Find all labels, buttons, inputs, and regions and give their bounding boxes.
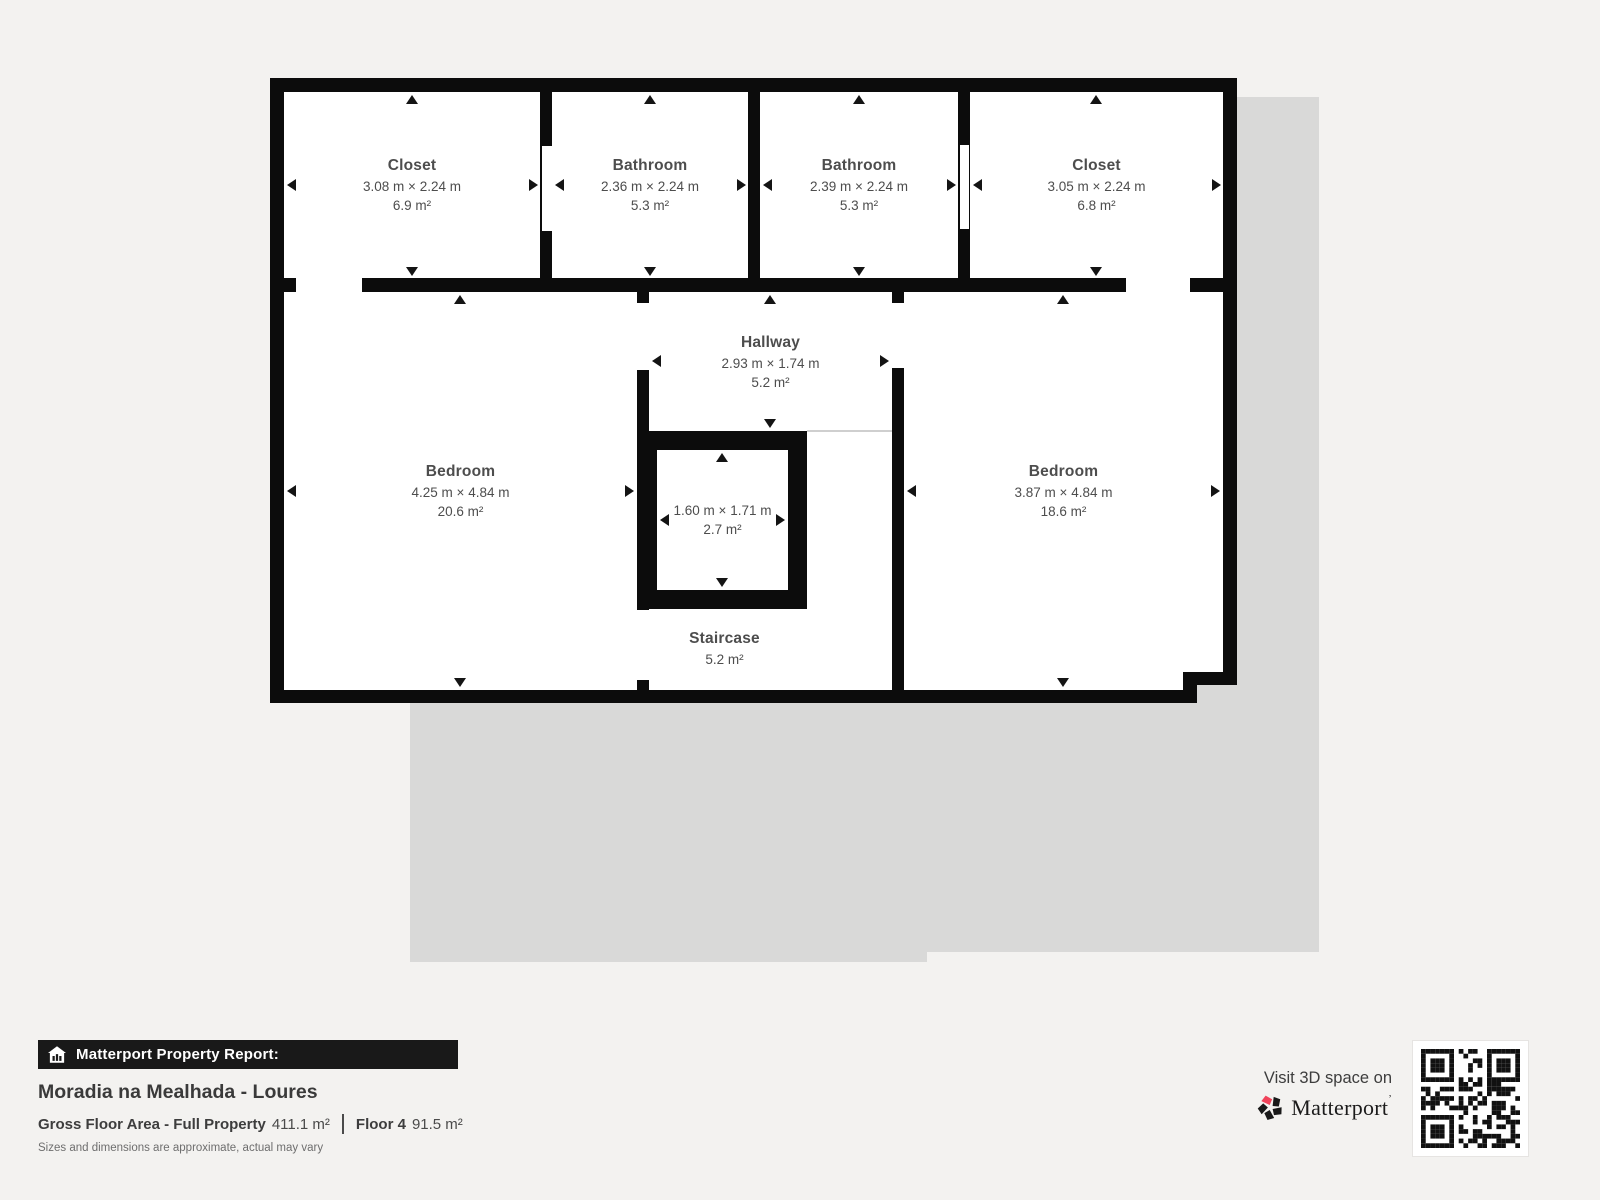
room-name: Hallway	[722, 332, 820, 354]
room-area: 5.2 m²	[689, 650, 760, 669]
room-name: Closet	[363, 155, 461, 177]
dim-arrow-down-icon	[716, 578, 728, 587]
room-area: 6.9 m²	[363, 196, 461, 215]
dim-arrow-up-icon	[716, 453, 728, 462]
room-dimensions: 3.87 m × 4.84 m	[1015, 483, 1113, 502]
dim-arrow-left-icon	[763, 179, 772, 191]
room-dimensions: 2.39 m × 2.24 m	[810, 177, 908, 196]
room-staircase: Staircase 5.2 m²	[649, 609, 800, 687]
report-header-bar: Matterport Property Report:	[38, 1040, 458, 1069]
dim-arrow-down-icon	[406, 267, 418, 276]
dim-arrow-left-icon	[555, 179, 564, 191]
room-bathroom-1: Bathroom 2.36 m × 2.24 m 5.3 m²	[552, 92, 748, 278]
room-closet-right: Closet 3.05 m × 2.24 m 6.8 m²	[970, 92, 1223, 278]
room-name: Bathroom	[601, 155, 699, 177]
dim-arrow-up-icon	[454, 295, 466, 304]
room-area: 18.6 m²	[1015, 502, 1113, 521]
gross-floor-area-label: Gross Floor Area - Full Property	[38, 1116, 266, 1133]
room-name: Bathroom	[810, 155, 908, 177]
room-closet-left: Closet 3.08 m × 2.24 m 6.9 m²	[284, 92, 540, 278]
door-opening	[542, 146, 552, 231]
building-outline-shadow	[1237, 97, 1319, 703]
room-name: Bedroom	[1015, 461, 1113, 483]
dim-arrow-left-icon	[973, 179, 982, 191]
door-opening	[1126, 277, 1190, 292]
dim-arrow-down-icon	[644, 267, 656, 276]
door-opening	[296, 277, 362, 292]
dim-arrow-down-icon	[853, 267, 865, 276]
corner-step-shadow	[1197, 685, 1237, 703]
floor-label: Floor 4	[356, 1116, 406, 1133]
dim-arrow-right-icon	[776, 514, 785, 526]
qr-code	[1412, 1040, 1529, 1157]
room-name: Bedroom	[412, 461, 510, 483]
dim-arrow-right-icon	[737, 179, 746, 191]
visit-3d-text: Visit 3D space on	[1150, 1069, 1392, 1088]
room-hallway: Hallway 2.93 m × 1.74 m 5.2 m²	[649, 292, 892, 431]
room-bedroom-right: Bedroom 3.87 m × 4.84 m 18.6 m²	[904, 292, 1223, 690]
room-name: Staircase	[689, 628, 760, 650]
dim-arrow-left-icon	[287, 485, 296, 497]
gross-floor-area-value: 411.1 m²	[272, 1116, 330, 1133]
room-bathroom-2: Bathroom 2.39 m × 2.24 m 5.3 m²	[760, 92, 958, 278]
dim-arrow-up-icon	[406, 95, 418, 104]
room-area: 5.3 m²	[810, 196, 908, 215]
room-area: 5.2 m²	[722, 373, 820, 392]
dim-arrow-up-icon	[644, 95, 656, 104]
dim-arrow-right-icon	[529, 179, 538, 191]
divider	[342, 1114, 344, 1134]
dim-arrow-left-icon	[287, 179, 296, 191]
room-area: 6.8 m²	[1048, 196, 1146, 215]
dim-arrow-right-icon	[880, 355, 889, 367]
dim-arrow-down-icon	[764, 419, 776, 428]
property-title: Moradia na Mealhada - Loures	[38, 1081, 318, 1104]
floor-area-info: Gross Floor Area - Full Property 411.1 m…	[38, 1114, 463, 1134]
door-opening	[960, 145, 969, 229]
room-dimensions: 3.05 m × 2.24 m	[1048, 177, 1146, 196]
dim-arrow-left-icon	[652, 355, 661, 367]
disclaimer-text: Sizes and dimensions are approximate, ac…	[38, 1142, 323, 1154]
floor-area-value: 91.5 m²	[412, 1116, 463, 1133]
hallway-staircase-divider	[807, 430, 892, 432]
room-area: 2.7 m²	[674, 520, 772, 539]
matterport-logo-icon	[1257, 1094, 1284, 1121]
room-dimensions: 3.08 m × 2.24 m	[363, 177, 461, 196]
report-bar-label: Matterport Property Report:	[76, 1046, 279, 1063]
door-opening	[637, 610, 650, 680]
matterport-link[interactable]: Matterport’	[1150, 1094, 1392, 1121]
house-chart-icon	[48, 1046, 66, 1063]
building-outline-shadow	[410, 703, 927, 962]
dim-arrow-right-icon	[1212, 179, 1221, 191]
dim-arrow-up-icon	[853, 95, 865, 104]
room-area: 20.6 m²	[412, 502, 510, 521]
room-name: Closet	[1048, 155, 1146, 177]
dim-arrow-right-icon	[625, 485, 634, 497]
dim-arrow-left-icon	[907, 485, 916, 497]
door-opening	[637, 303, 650, 370]
room-dimensions: 2.36 m × 2.24 m	[601, 177, 699, 196]
dim-arrow-right-icon	[947, 179, 956, 191]
dim-arrow-up-icon	[764, 295, 776, 304]
room-bedroom-left: Bedroom 4.25 m × 4.84 m 20.6 m²	[284, 292, 637, 690]
dim-arrow-left-icon	[660, 514, 669, 526]
dim-arrow-right-icon	[1211, 485, 1220, 497]
room-inner-unlabeled: 1.60 m × 1.71 m 2.7 m²	[657, 450, 788, 590]
dim-arrow-up-icon	[1090, 95, 1102, 104]
door-opening	[892, 303, 905, 368]
building-outline-shadow	[927, 703, 1319, 952]
dim-arrow-down-icon	[1057, 678, 1069, 687]
dim-arrow-down-icon	[1090, 267, 1102, 276]
matterport-wordmark: Matterport’	[1291, 1095, 1392, 1121]
room-area: 5.3 m²	[601, 196, 699, 215]
room-dimensions: 4.25 m × 4.84 m	[412, 483, 510, 502]
room-dimensions: 2.93 m × 1.74 m	[722, 354, 820, 373]
room-dimensions: 1.60 m × 1.71 m	[674, 501, 772, 520]
dim-arrow-down-icon	[454, 678, 466, 687]
page: Closet 3.08 m × 2.24 m 6.9 m² Bathroom 2…	[0, 0, 1600, 1200]
dim-arrow-up-icon	[1057, 295, 1069, 304]
